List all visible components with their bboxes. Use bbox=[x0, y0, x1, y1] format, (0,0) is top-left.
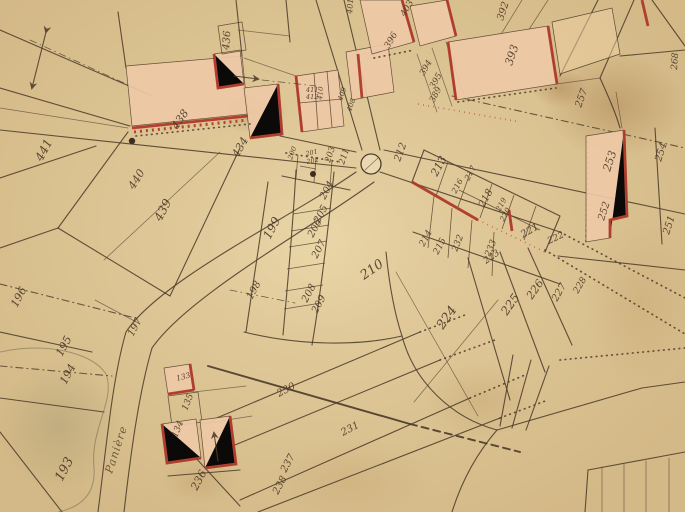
map-stroke bbox=[652, 0, 685, 46]
parcel-number-label: 237 bbox=[278, 452, 297, 475]
parcel-number-label: 440 bbox=[125, 167, 148, 193]
map-stroke bbox=[296, 155, 298, 178]
map-stroke bbox=[258, 418, 500, 512]
map-stroke bbox=[468, 220, 472, 268]
map-stroke bbox=[600, 78, 620, 128]
boundary-stone-dot bbox=[310, 171, 316, 177]
map-stroke bbox=[560, 348, 685, 360]
parcel-number-label: 195 bbox=[53, 334, 74, 359]
parcel-number-label: 394 bbox=[418, 58, 435, 77]
map-stroke bbox=[470, 375, 525, 398]
map-stroke bbox=[0, 366, 112, 376]
map-stroke bbox=[452, 430, 497, 512]
map-stroke bbox=[386, 252, 497, 430]
parcel-number-label: 200 bbox=[286, 145, 299, 162]
map-stroke bbox=[588, 452, 685, 470]
parcel-number-label: 224 bbox=[433, 303, 460, 333]
parcel-number-label: 392 bbox=[495, 0, 511, 22]
cadastral-map-drawing: 4414404394384344364114124104094084014033… bbox=[0, 0, 685, 512]
parcel-number-label: 257 bbox=[573, 87, 590, 110]
parcel-number-label: 196 bbox=[8, 285, 29, 310]
map-stroke bbox=[557, 78, 600, 84]
parcel-number-label: 217 bbox=[462, 163, 478, 182]
parcel-number-label: 268 bbox=[670, 52, 681, 71]
parcel-number-label: 222 bbox=[545, 230, 566, 247]
map-stroke bbox=[396, 272, 478, 416]
map-stroke bbox=[58, 132, 128, 228]
parcel-number-label: 211 bbox=[337, 147, 352, 166]
survey-arrow bbox=[32, 32, 46, 88]
map-stroke bbox=[0, 228, 58, 248]
map-stroke bbox=[58, 228, 170, 296]
parcel-number-label: 204 bbox=[317, 179, 336, 202]
map-stroke bbox=[558, 256, 685, 270]
map-stroke bbox=[0, 432, 62, 512]
map-stroke bbox=[0, 130, 356, 168]
parcel-number-label: 197 bbox=[126, 316, 145, 339]
map-stroke bbox=[238, 30, 290, 36]
map-stroke bbox=[124, 182, 374, 512]
parcel-number-label: 225 bbox=[497, 291, 522, 319]
map-stroke bbox=[300, 166, 316, 169]
map-stroke bbox=[452, 96, 685, 148]
map-stroke bbox=[384, 150, 685, 214]
map-stroke bbox=[500, 355, 513, 426]
building-footprint bbox=[552, 8, 620, 74]
parcel-number-label: 436 bbox=[221, 30, 233, 51]
parcel-number-label: 251 bbox=[661, 214, 678, 237]
map-stroke bbox=[218, 360, 440, 452]
parcel-number-label: 401 bbox=[345, 0, 355, 15]
map-stroke bbox=[642, 0, 648, 26]
map-stroke bbox=[500, 400, 548, 418]
parcel-number-label: 231 bbox=[338, 420, 361, 439]
boundary-stone-dot bbox=[129, 138, 135, 144]
map-stroke bbox=[0, 108, 128, 128]
map-stroke bbox=[244, 58, 296, 76]
map-stroke bbox=[236, 0, 242, 56]
parcel-number-label: 202 bbox=[305, 156, 320, 167]
road-name-label: Panière bbox=[102, 424, 130, 476]
map-stroke bbox=[246, 182, 268, 332]
map-stroke bbox=[526, 366, 549, 430]
parcel-number-label: 232 bbox=[450, 233, 466, 254]
map-stroke bbox=[440, 340, 495, 360]
map-stroke bbox=[283, 170, 296, 335]
map-stroke bbox=[244, 332, 402, 343]
parcel-number-label: 228 bbox=[571, 275, 589, 296]
parcel-number-label: 212 bbox=[392, 141, 409, 164]
parcel-number-label: 439 bbox=[151, 196, 175, 224]
map-stroke bbox=[118, 12, 126, 68]
parcel-number-label: 210 bbox=[357, 257, 387, 284]
building-footprint bbox=[346, 44, 394, 100]
parcel-number-label: 193 bbox=[52, 455, 77, 484]
map-stroke bbox=[208, 366, 410, 424]
cadastral-map-canvas: 4414404394384344364114124104094084014033… bbox=[0, 0, 685, 512]
parcel-number-label: 236 bbox=[188, 468, 210, 494]
map-stroke bbox=[412, 150, 424, 182]
map-stroke bbox=[0, 348, 108, 512]
parcel-number-label: 203 bbox=[323, 145, 338, 164]
map-stroke bbox=[0, 88, 130, 126]
map-stroke bbox=[616, 92, 622, 128]
parcel-number-label: 194 bbox=[57, 362, 78, 387]
parcel-number-label: 238 bbox=[270, 474, 289, 497]
parcel-number-label: 198 bbox=[245, 279, 264, 301]
parcel-number-label: 135 bbox=[181, 392, 197, 412]
map-stroke bbox=[0, 398, 104, 412]
map-stroke bbox=[194, 386, 246, 392]
map-stroke bbox=[512, 360, 531, 428]
map-stroke bbox=[230, 290, 295, 303]
parcel-number-label: 230 bbox=[274, 381, 297, 400]
map-stroke bbox=[497, 382, 685, 430]
map-stroke bbox=[418, 104, 520, 122]
map-stroke bbox=[287, 263, 325, 269]
map-stroke bbox=[170, 148, 240, 296]
parcel-number-label: 410 bbox=[316, 86, 325, 102]
parcel-number-label: 199 bbox=[260, 214, 283, 241]
map-stroke bbox=[585, 470, 588, 512]
